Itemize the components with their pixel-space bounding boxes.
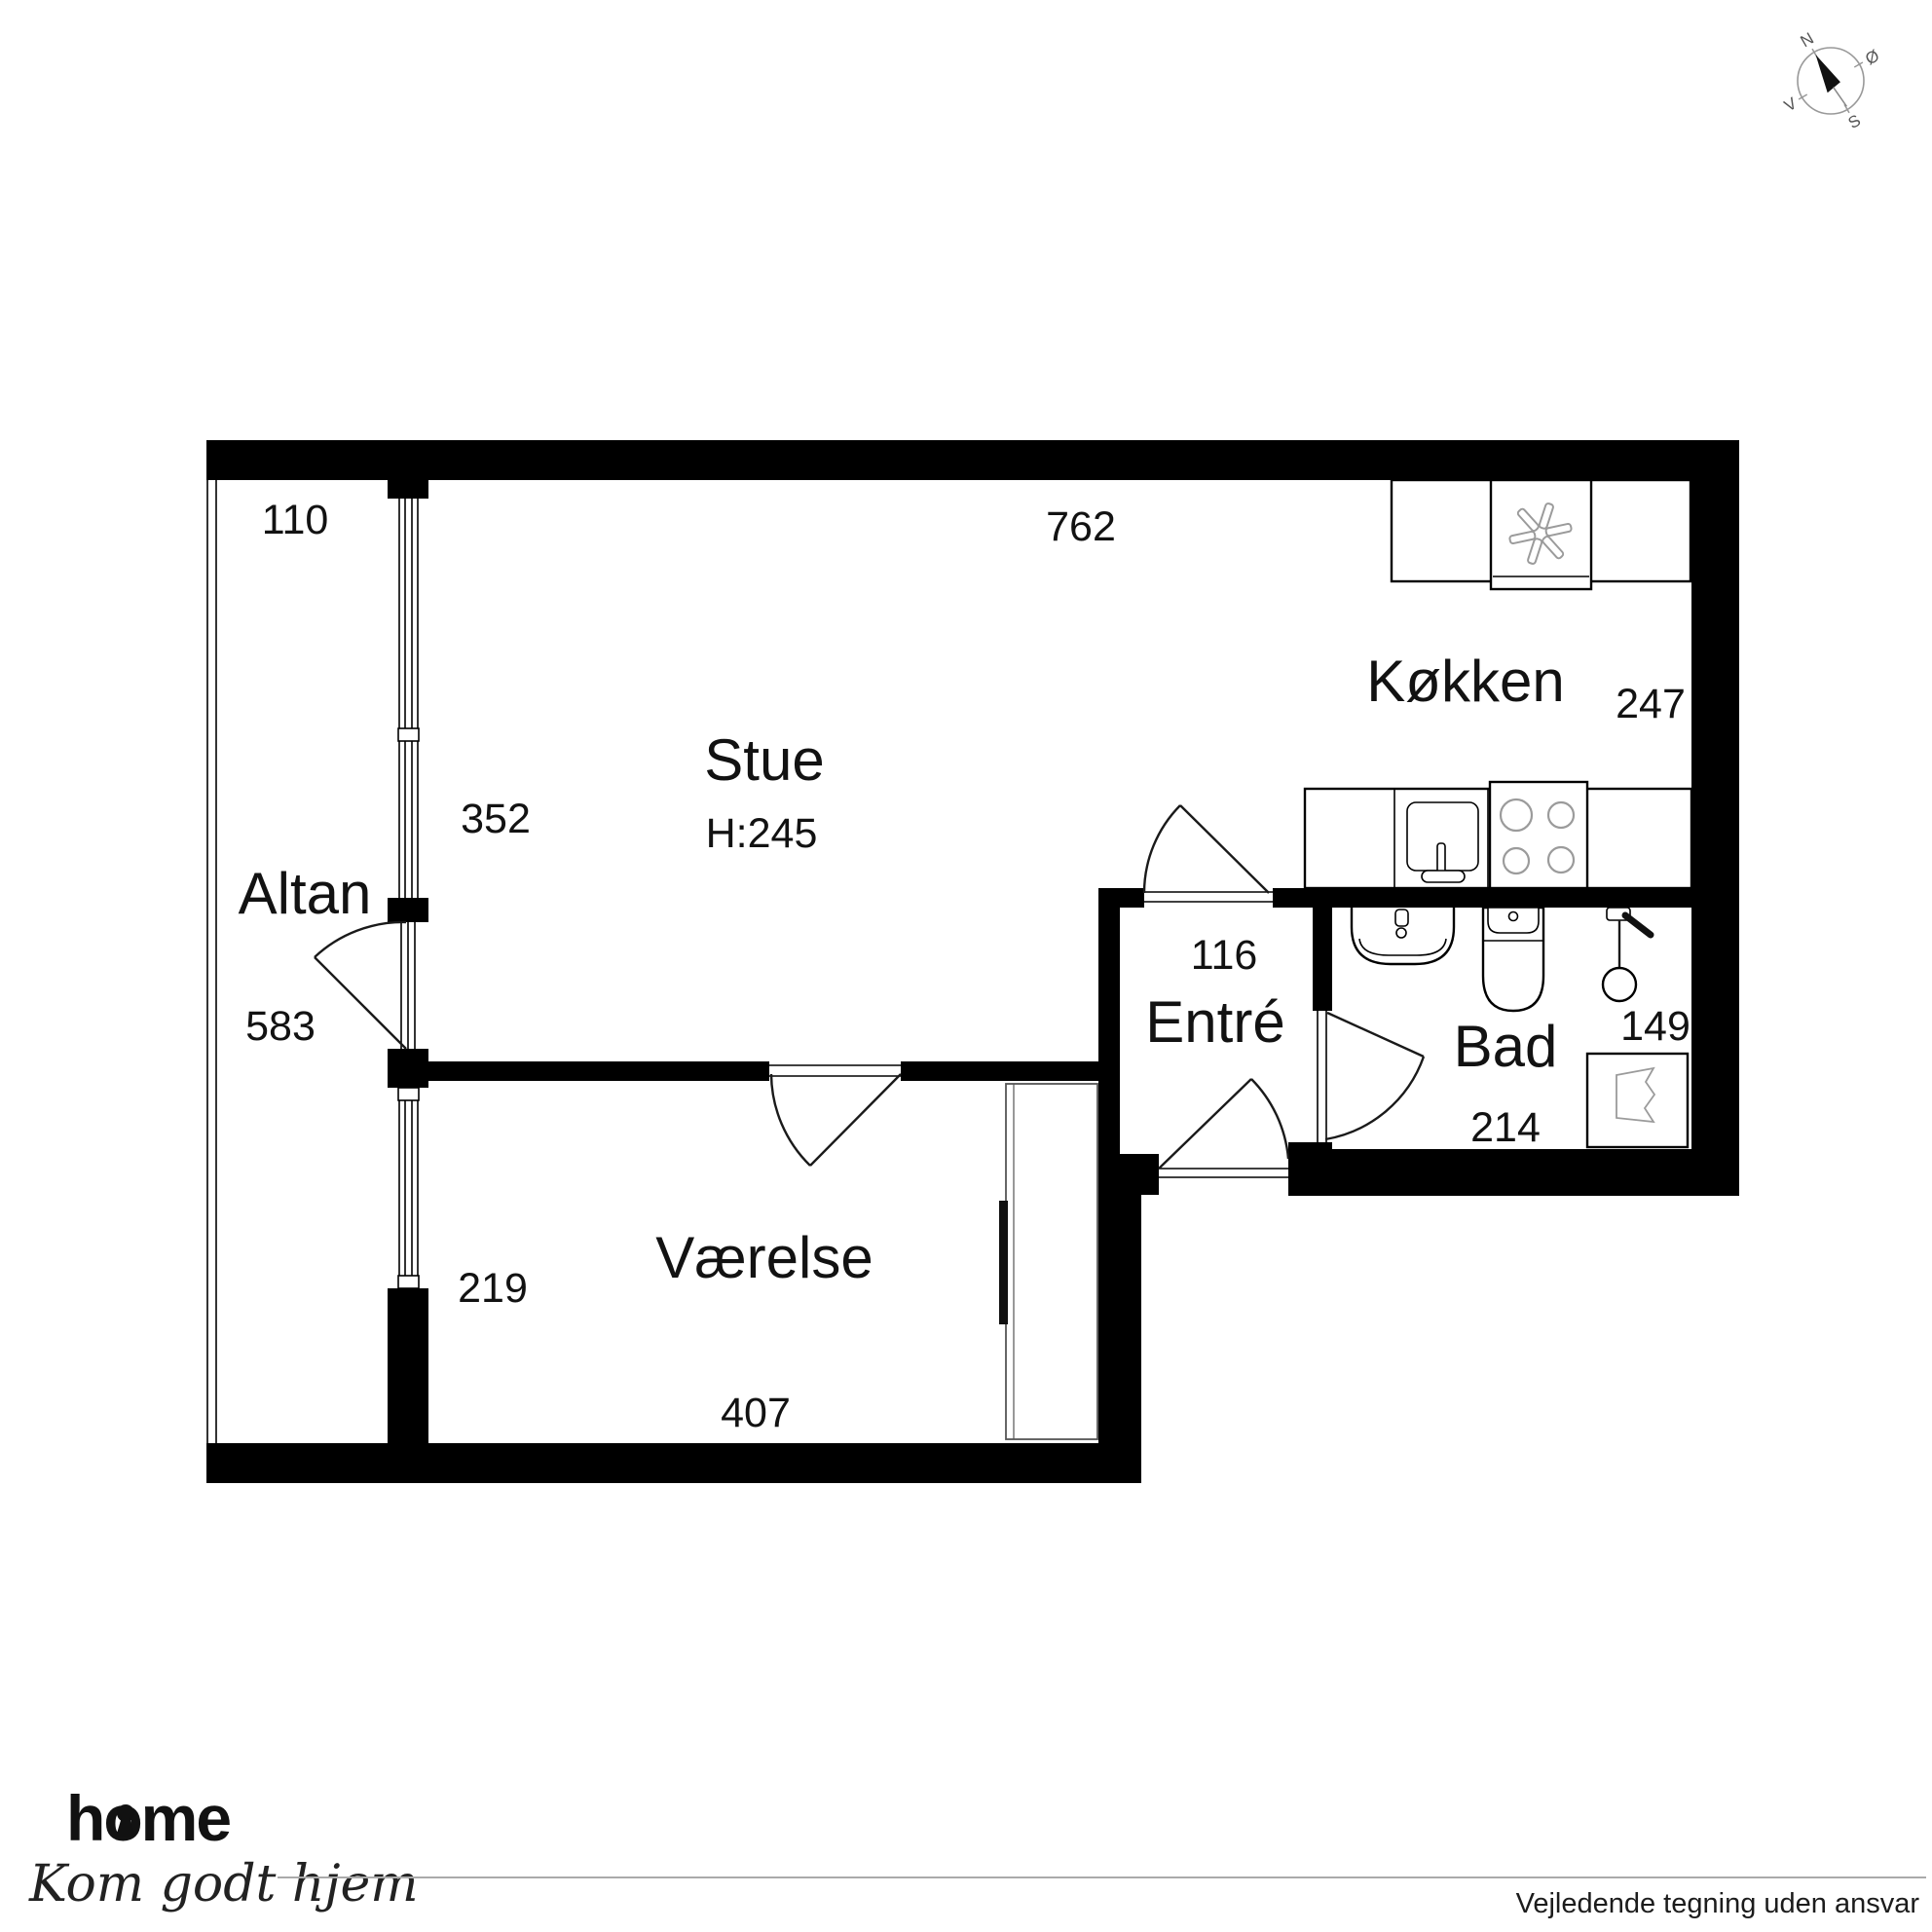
window-column-mid-block	[388, 898, 428, 922]
fridge	[1491, 480, 1591, 589]
shower-head-icon	[1603, 968, 1636, 1001]
balcony-door	[315, 922, 406, 1049]
wall-bottom	[206, 1443, 1141, 1483]
window-transom-marker	[398, 1276, 419, 1288]
stove	[1490, 782, 1587, 888]
stue-entre-door	[1144, 805, 1273, 902]
glass-wall-windows	[398, 499, 419, 1288]
room-label-altan: Altan	[239, 861, 372, 926]
compass-south-label: S	[1845, 111, 1864, 132]
compass-east-label: Ø	[1862, 46, 1882, 68]
shower-fixture	[1603, 908, 1651, 1001]
dimension-labels: 110 762 352 247 583 116 149 214 219 407	[245, 497, 1690, 1436]
wardrobe	[999, 1084, 1097, 1439]
dim-entre-width: 116	[1191, 932, 1258, 979]
compass-west-label: V	[1781, 93, 1801, 115]
ceiling-height-stue: H:245	[706, 810, 818, 857]
balcony-outline	[207, 480, 216, 1443]
window-transom-marker	[398, 1088, 419, 1100]
kitchen-sink	[1407, 802, 1478, 882]
wall-entre-bottom-right-block	[1288, 1142, 1332, 1196]
dim-koekken-depth: 247	[1616, 681, 1686, 727]
footer: home Kom godt hjem Vejledende tegning ud…	[28, 1782, 1926, 1919]
disclaimer-text: Vejledende tegning uden ansvar	[1516, 1888, 1920, 1919]
room-label-vaerelse: Værelse	[655, 1225, 873, 1290]
compass: N Ø S V	[1758, 5, 1907, 156]
wall-west-wing-right	[1098, 1195, 1141, 1483]
window-transom-marker	[398, 728, 419, 741]
floorplan-drawing: Stue H:245 Køkken Altan Entré Bad Værels…	[0, 0, 1932, 1932]
window-segment-a	[398, 499, 419, 741]
dim-bad-width: 214	[1470, 1104, 1541, 1151]
floorplan-page: Stue H:245 Køkken Altan Entré Bad Værels…	[0, 0, 1932, 1932]
dim-stue-width: 762	[1046, 503, 1116, 550]
wall-bad-bottom	[1288, 1149, 1739, 1196]
room-label-koekken: Køkken	[1366, 649, 1564, 714]
room-label-entre: Entré	[1145, 989, 1284, 1055]
dim-altan-width: 110	[262, 497, 329, 543]
home-logo: home	[66, 1782, 230, 1854]
bathroom-sink	[1352, 908, 1454, 964]
wall-vaerelse-top-right	[901, 1061, 1098, 1081]
dim-vaerelse-width: 407	[721, 1390, 791, 1436]
wall-vaerelse-top-left	[428, 1061, 769, 1081]
bath-faucet-icon	[1395, 910, 1408, 926]
wall-top	[206, 440, 1739, 480]
vaerelse-door	[769, 1065, 901, 1166]
room-label-bad: Bad	[1454, 1014, 1558, 1079]
shower-handle-icon	[1625, 915, 1651, 935]
dim-vaerelse-side: 219	[458, 1265, 528, 1312]
compass-north-label: N	[1798, 29, 1817, 52]
wardrobe-door-handle	[999, 1201, 1008, 1324]
dim-stue-side: 352	[461, 796, 531, 842]
window-column-hinge-block	[388, 1049, 428, 1088]
shower-basin	[1587, 1054, 1688, 1147]
dim-altan-length: 583	[245, 1003, 316, 1050]
flush-button-icon	[1509, 912, 1518, 921]
window-column-bottom-block	[388, 1288, 428, 1443]
wall-entre-bottom-left-block	[1098, 1154, 1159, 1195]
dim-bad-depth: 149	[1620, 1003, 1690, 1050]
room-label-stue: Stue	[704, 727, 824, 793]
bad-door	[1318, 1011, 1424, 1142]
brand-tagline: Kom godt hjem	[28, 1855, 419, 1913]
wall-entre-top-corner	[1098, 888, 1144, 908]
window-segment-c	[398, 1088, 419, 1288]
toilet	[1483, 908, 1543, 1011]
window-column-top-stub	[388, 480, 428, 499]
wall-kitchen-bad-divider	[1273, 888, 1739, 908]
wall-entre-left	[1098, 888, 1120, 1154]
entrance-door	[1159, 1079, 1288, 1177]
wall-right	[1691, 440, 1739, 1196]
wall-bad-left-upper	[1313, 908, 1332, 1011]
balcony-door-leaf-lines	[401, 922, 415, 1049]
window-segment-b	[399, 741, 418, 898]
